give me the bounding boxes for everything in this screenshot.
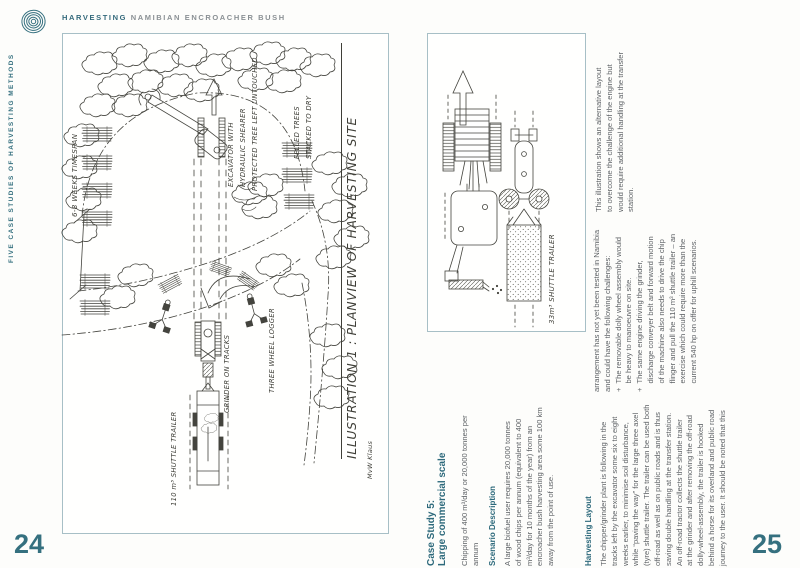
label-excavator: EXCAVATOR WITH HYDRAULIC SHEARER — [226, 75, 249, 187]
page-number-left: 24 — [14, 529, 44, 560]
shuttle-trailer-33-sketch — [507, 217, 541, 301]
shuttle-trailer-110-sketch — [193, 383, 223, 485]
label-grinder: GRINDER ON TRACKS — [223, 321, 231, 413]
label-three-wheel-logger: THREE WHEEL LOGGER — [268, 305, 276, 393]
chapter-vertical-label: FIVE CASE STUDIES OF HARVESTING METHODS — [8, 91, 15, 263]
scenario-heading: Scenario Description — [488, 471, 497, 566]
label-timespan: 6-8 WEEKS TIMESPAN — [70, 117, 79, 217]
discharge-chute-sketch — [445, 245, 502, 294]
three-wheel-logger-2 — [239, 291, 267, 327]
chipper-grinder-sketch — [443, 109, 501, 245]
label-trailer-33: 33m³ SHUTTLE TRAILER — [548, 156, 556, 324]
haul-arrow — [201, 276, 256, 308]
grinder-sketch — [195, 321, 221, 389]
illustration-2-caption: This illustration shows an alternative l… — [594, 47, 637, 212]
three-wheel-logger-1 — [149, 297, 179, 333]
label-protected-tree: PROTECTED TREE LEFT UNTOUCHED — [251, 49, 259, 191]
illustration-1-sketch — [62, 33, 387, 532]
illustration-1-title: ILLUSTRATION 1 : PLANVIEW OF HARVESTING … — [341, 43, 359, 459]
book-spread: HARVESTING NAMIBIAN ENCROACHER BUSH FIVE… — [0, 0, 800, 568]
harvesting-heading: Harvesting Layout — [584, 476, 593, 566]
illustration-2-sketch — [427, 33, 584, 330]
direction-arrow-right — [453, 71, 473, 125]
header-harvesting: HARVESTING — [62, 13, 127, 22]
label-trailer-110: 110 m³ SHUTTLE TRAILER — [170, 388, 178, 506]
chipping-note: Chipping of 400 m³/day or 20,000 tonnes … — [460, 388, 482, 566]
tractor-sketch — [499, 129, 549, 225]
challenges-paragraph: arrangement has not yet been tested in N… — [592, 210, 700, 392]
page-number-right: 25 — [752, 529, 782, 560]
machine-track-path — [194, 159, 226, 319]
case-study-heading: Case Study 5: Large commercial scale — [427, 416, 449, 566]
harvesting-paragraph: The chipper/grinder plant is following i… — [599, 376, 729, 566]
scenario-paragraph: A large biofuel user requires 20,000 ton… — [503, 384, 557, 566]
header-subject: NAMIBIAN ENCROACHER BUSH — [127, 13, 286, 22]
tree-rings-logo-icon — [20, 8, 47, 35]
document-header: HARVESTING NAMIBIAN ENCROACHER BUSH — [62, 13, 286, 22]
clearing-arc — [62, 93, 329, 465]
illustrator-signature: MvW Klaus — [366, 427, 374, 479]
label-felled-trees: FELLED TREES STACKED TO DRY — [292, 85, 315, 159]
